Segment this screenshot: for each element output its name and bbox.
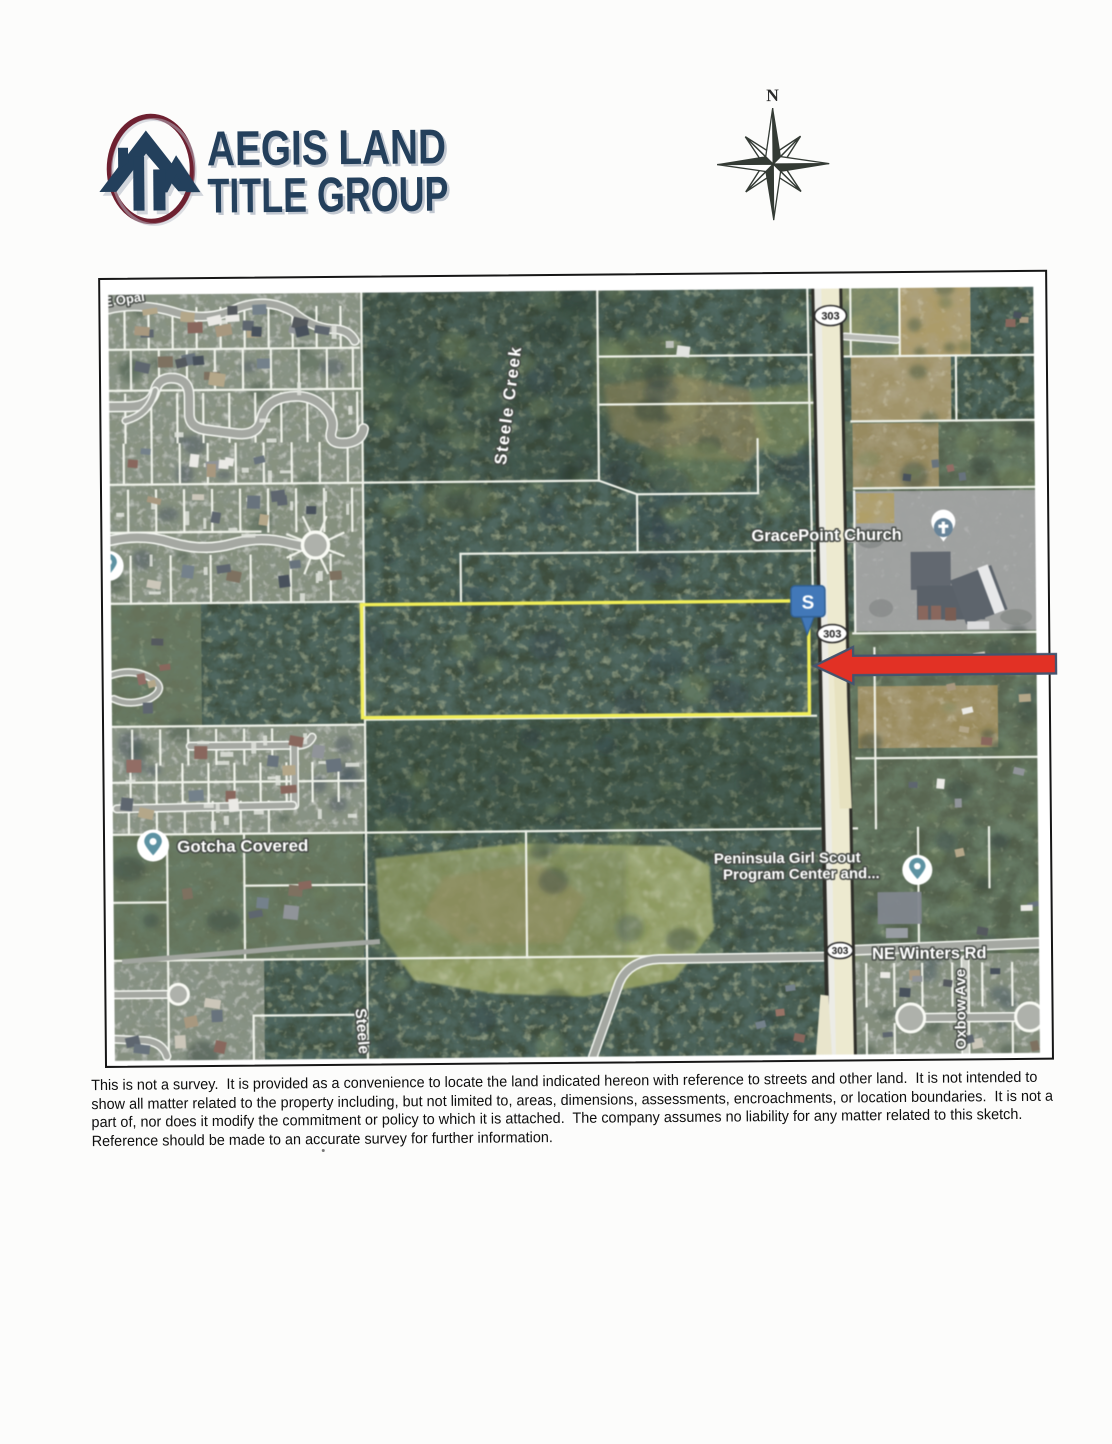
svg-text:TITLE GROUP: TITLE GROUP xyxy=(207,168,448,224)
svg-text:303: 303 xyxy=(832,946,849,957)
svg-text:N: N xyxy=(766,85,779,105)
svg-text:Steele: Steele xyxy=(352,1008,373,1055)
svg-text:NE Winters Rd: NE Winters Rd xyxy=(872,944,987,963)
svg-text:303: 303 xyxy=(823,628,841,640)
svg-text:Gotcha Covered: Gotcha Covered xyxy=(177,836,308,856)
svg-text:S: S xyxy=(802,593,815,614)
svg-text:303: 303 xyxy=(821,310,839,322)
svg-text:GracePoint Church: GracePoint Church xyxy=(751,526,902,545)
svg-text:Program Center and...: Program Center and... xyxy=(723,865,880,883)
svg-text:Oxbow Ave: Oxbow Ave xyxy=(952,969,970,1050)
